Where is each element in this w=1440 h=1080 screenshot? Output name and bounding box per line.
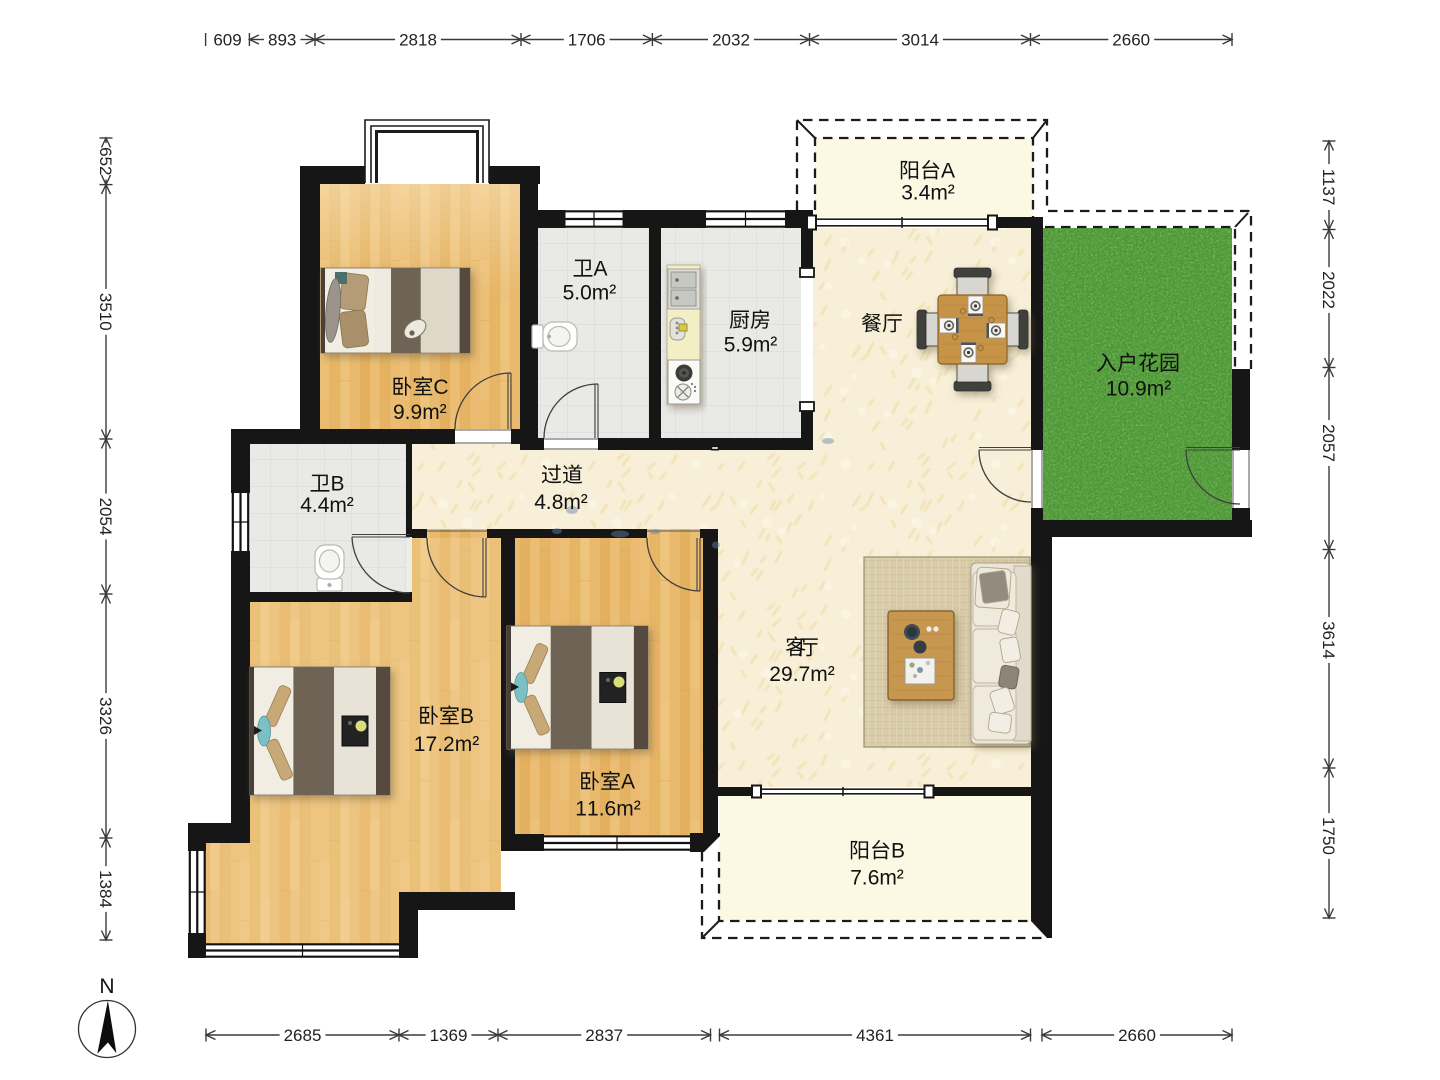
svg-text:2818: 2818	[399, 31, 437, 50]
svg-text:m: m	[810, 663, 828, 686]
svg-text:m: m	[753, 334, 771, 357]
svg-text:m: m	[455, 733, 473, 756]
svg-text:6: 6	[605, 798, 617, 821]
svg-text:2685: 2685	[284, 1026, 322, 1045]
svg-text:1: 1	[1106, 378, 1118, 401]
svg-text:B: B	[460, 705, 474, 728]
svg-text:2: 2	[443, 733, 455, 756]
svg-text:²: ²	[609, 282, 616, 305]
svg-text:1706: 1706	[568, 31, 606, 50]
svg-text:8: 8	[552, 491, 564, 514]
svg-text:4: 4	[534, 491, 546, 514]
svg-text:2837: 2837	[585, 1026, 623, 1045]
svg-text:²: ²	[828, 663, 835, 686]
svg-text:4361: 4361	[856, 1026, 894, 1045]
svg-text:5: 5	[724, 334, 736, 357]
svg-text:3: 3	[901, 182, 913, 205]
svg-text:4: 4	[300, 494, 312, 517]
svg-text:9: 9	[781, 663, 793, 686]
svg-text:客: 客	[785, 637, 806, 660]
svg-text:2660: 2660	[1112, 31, 1150, 50]
svg-text:1137: 1137	[1319, 169, 1338, 206]
svg-text:0: 0	[580, 282, 592, 305]
svg-text:N: N	[99, 975, 114, 998]
svg-text:1: 1	[575, 798, 587, 821]
svg-text:7: 7	[426, 733, 438, 756]
svg-text:2057: 2057	[1319, 424, 1338, 462]
svg-text:4: 4	[318, 494, 330, 517]
svg-text:²: ²	[948, 182, 955, 205]
svg-text:²: ²	[347, 494, 354, 517]
svg-text:3014: 3014	[901, 31, 939, 50]
svg-text:1: 1	[414, 733, 426, 756]
svg-text:3614: 3614	[1319, 621, 1338, 659]
svg-text:7: 7	[850, 867, 862, 890]
svg-text:m: m	[563, 491, 581, 514]
svg-text:C: C	[433, 376, 448, 399]
svg-text:1750: 1750	[1319, 817, 1338, 855]
svg-text:4: 4	[919, 182, 931, 205]
svg-text:A: A	[594, 258, 608, 281]
svg-text:893: 893	[268, 31, 296, 50]
svg-text:6: 6	[868, 867, 880, 890]
svg-text:m: m	[592, 282, 610, 305]
svg-text:9: 9	[393, 401, 405, 424]
svg-text:²: ²	[770, 334, 777, 357]
svg-text:A: A	[621, 771, 635, 794]
svg-text:²: ²	[634, 798, 641, 821]
svg-text:m: m	[329, 494, 347, 517]
svg-text:609: 609	[213, 31, 241, 50]
svg-text:B: B	[331, 473, 345, 496]
svg-text:m: m	[930, 182, 948, 205]
svg-text:2: 2	[769, 663, 781, 686]
svg-text:m: m	[879, 867, 897, 890]
svg-text:²: ²	[440, 401, 447, 424]
svg-text:1384: 1384	[96, 870, 115, 908]
svg-text:9: 9	[741, 334, 753, 357]
svg-text:1369: 1369	[430, 1026, 468, 1045]
svg-text:3326: 3326	[96, 697, 115, 735]
svg-text:7: 7	[799, 663, 811, 686]
svg-text:2054: 2054	[96, 498, 115, 536]
svg-text:²: ²	[897, 867, 904, 890]
svg-text:A: A	[941, 160, 955, 183]
svg-text:5: 5	[563, 282, 575, 305]
svg-text:²: ²	[581, 491, 588, 514]
svg-text:B: B	[891, 840, 905, 863]
svg-text:2022: 2022	[1319, 271, 1338, 309]
svg-text:9: 9	[1135, 378, 1147, 401]
svg-text:m: m	[1147, 378, 1165, 401]
svg-text:1: 1	[587, 798, 599, 821]
svg-text:m: m	[422, 401, 440, 424]
svg-text:2660: 2660	[1118, 1026, 1156, 1045]
svg-text:652: 652	[96, 147, 115, 175]
svg-text:9: 9	[411, 401, 423, 424]
svg-text:3510: 3510	[96, 293, 115, 331]
svg-text:0: 0	[1118, 378, 1130, 401]
svg-text:²: ²	[1164, 378, 1171, 401]
svg-text:m: m	[616, 798, 634, 821]
svg-text:2032: 2032	[712, 31, 750, 50]
svg-text:²: ²	[472, 733, 479, 756]
